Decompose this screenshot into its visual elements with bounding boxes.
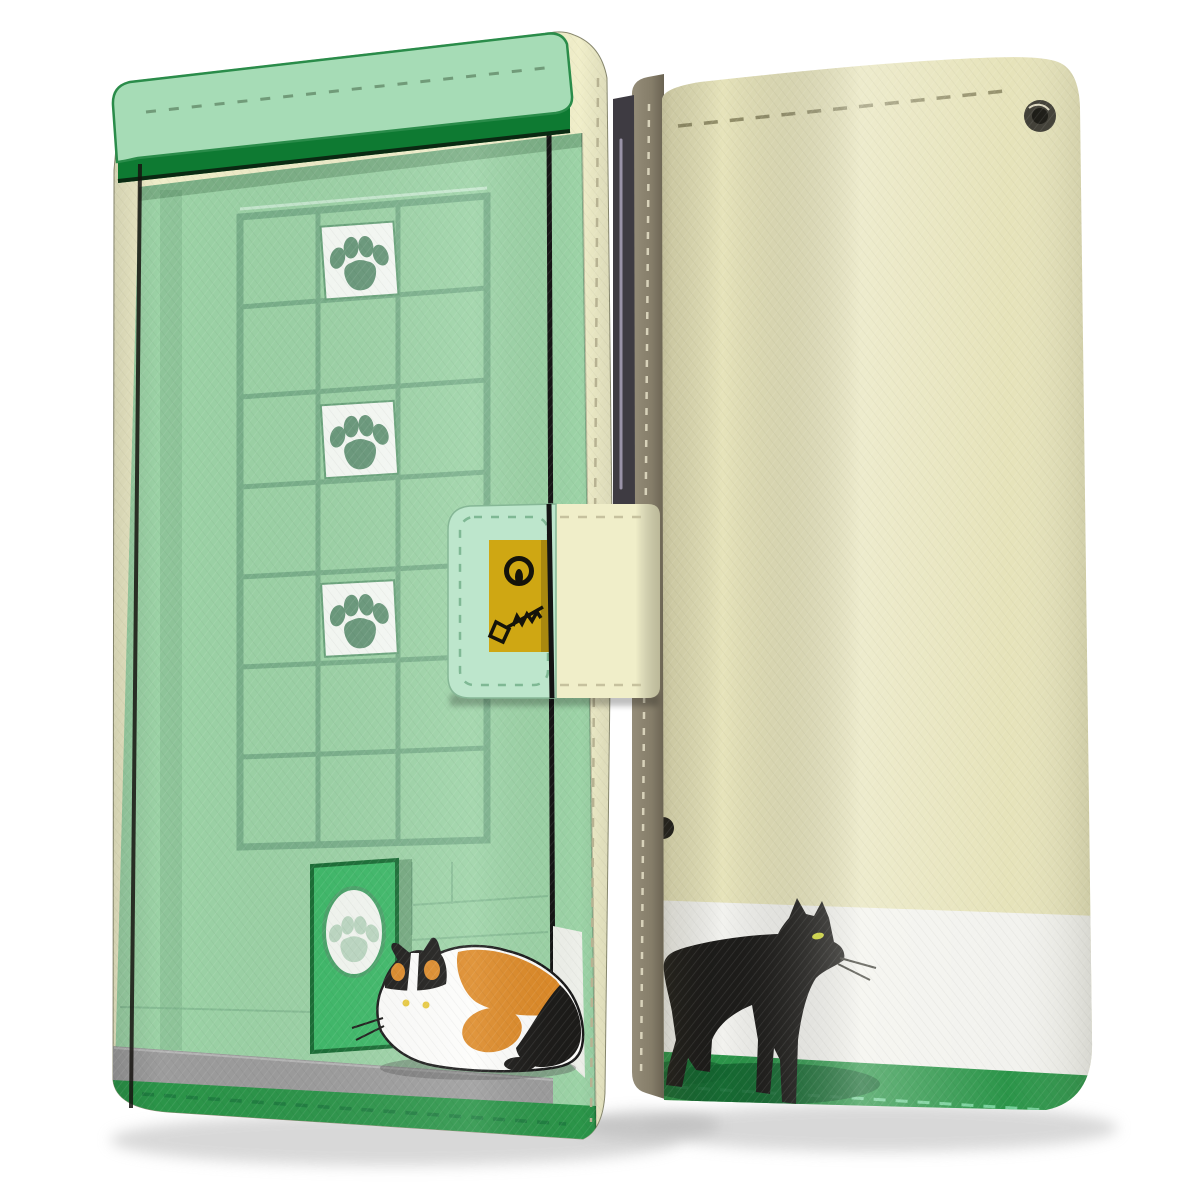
- clasp-corner-line: [549, 504, 552, 698]
- gold-emblem: [489, 540, 549, 652]
- right-case-back-view: [626, 40, 1106, 1200]
- product-photo: [0, 0, 1200, 1200]
- phone-side: [613, 95, 635, 517]
- phone-case-scene: [0, 0, 1200, 1200]
- clasp-strap: [448, 504, 660, 706]
- back-texture2: [626, 40, 1106, 1130]
- phone-edge: [613, 95, 635, 517]
- clasp-body-shade: [556, 504, 660, 698]
